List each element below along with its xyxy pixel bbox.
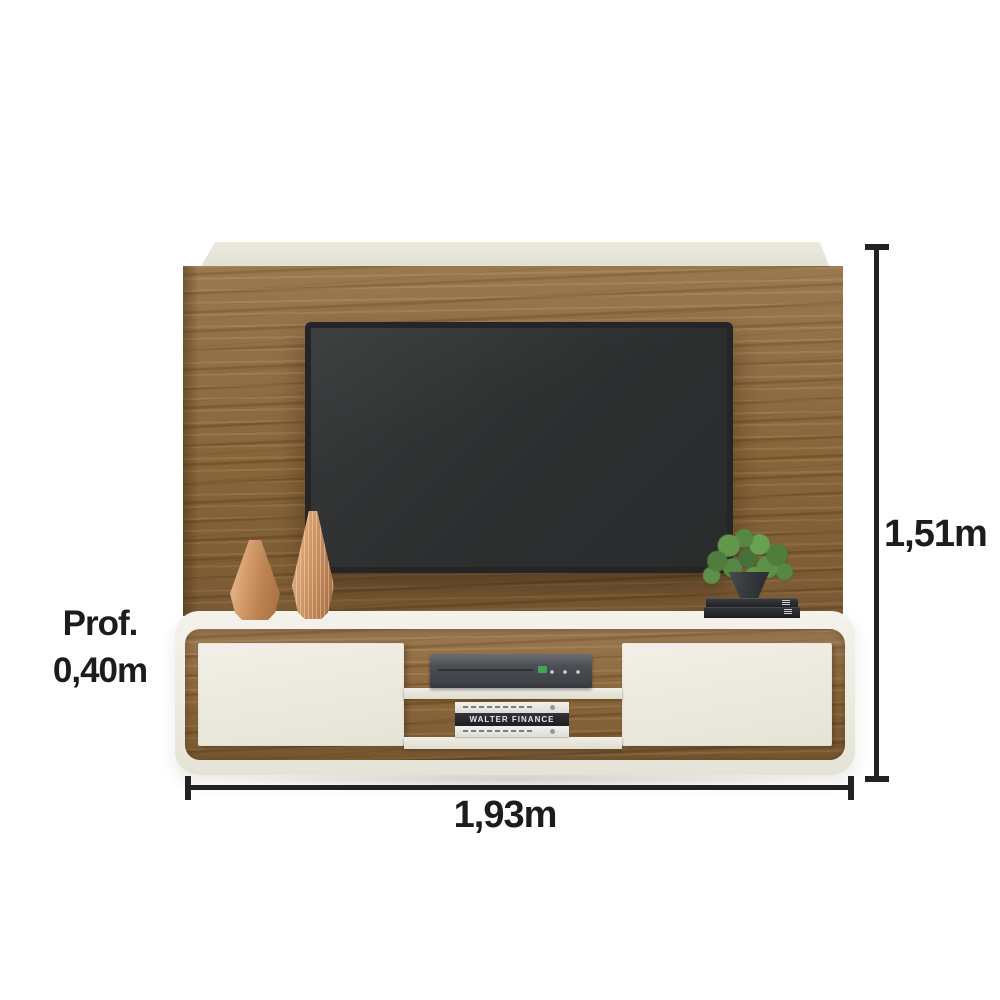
book-stack: WALTER FINANCE (455, 702, 569, 737)
media-player-disc-tray (438, 669, 533, 671)
depth-label-prefix: Prof. (25, 600, 175, 647)
product-image: WALTER FINANCE 1,51m 1,93m Prof. 0,40m (0, 0, 1000, 1000)
book-spine-text (463, 706, 533, 708)
height-dimension-line (874, 247, 879, 780)
cabinet-shelf-bottom (404, 737, 622, 749)
decor-book (704, 607, 800, 618)
height-dimension-cap-bottom (865, 776, 889, 782)
width-dimension-line (188, 785, 851, 790)
width-label: 1,93m (405, 794, 605, 837)
width-dimension-cap-right (848, 776, 854, 800)
book-spine-logo (550, 729, 555, 734)
cabinet-door-left (198, 643, 404, 746)
book-spine (455, 726, 569, 737)
book-spine (455, 702, 569, 713)
television (305, 322, 733, 573)
media-player (430, 654, 592, 688)
height-label: 1,51m (884, 513, 987, 556)
depth-label: Prof. 0,40m (25, 600, 175, 694)
width-dimension-cap-left (185, 776, 191, 800)
book-spine-text (463, 730, 533, 732)
book-label (782, 600, 790, 605)
panel-top-edge (200, 242, 830, 268)
depth-label-value: 0,40m (25, 647, 175, 694)
book-spine-logo (550, 705, 555, 710)
decor-book (706, 598, 798, 607)
media-player-buttons (548, 670, 582, 674)
tv-screen (311, 328, 727, 567)
bluray-logo-icon (538, 666, 547, 673)
book-spine-title: WALTER FINANCE (455, 713, 569, 726)
height-dimension-cap-top (865, 244, 889, 250)
cabinet-door-right (622, 643, 832, 746)
book-label (784, 609, 792, 614)
cabinet-shelf (404, 688, 622, 699)
panel-left-edge (183, 266, 197, 616)
decor-books (704, 598, 800, 618)
